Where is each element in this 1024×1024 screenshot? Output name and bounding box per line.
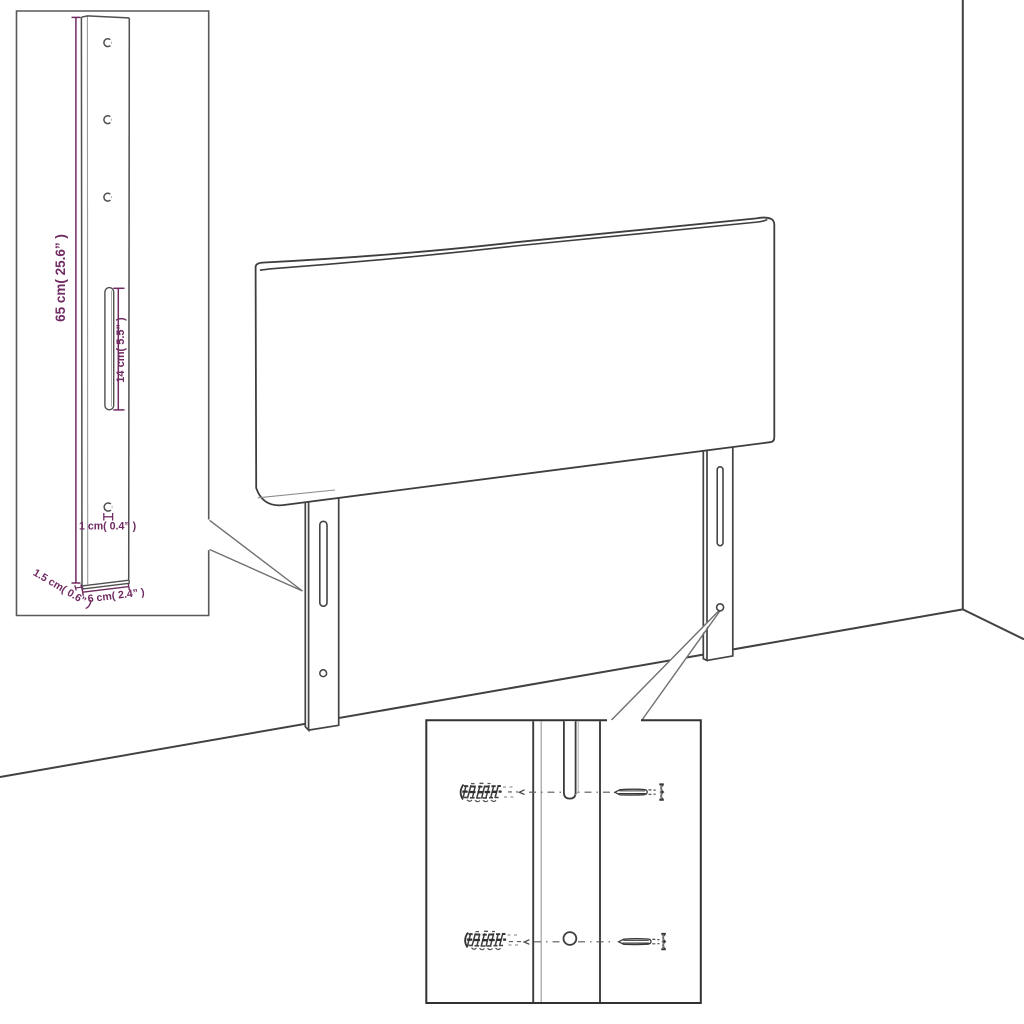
svg-text:65 cm( 25.6” ): 65 cm( 25.6” ): [53, 234, 68, 322]
svg-text:1 cm( 0.4” ): 1 cm( 0.4” ): [79, 520, 136, 532]
svg-text:14 cm( 5.5” ): 14 cm( 5.5” ): [115, 317, 127, 383]
